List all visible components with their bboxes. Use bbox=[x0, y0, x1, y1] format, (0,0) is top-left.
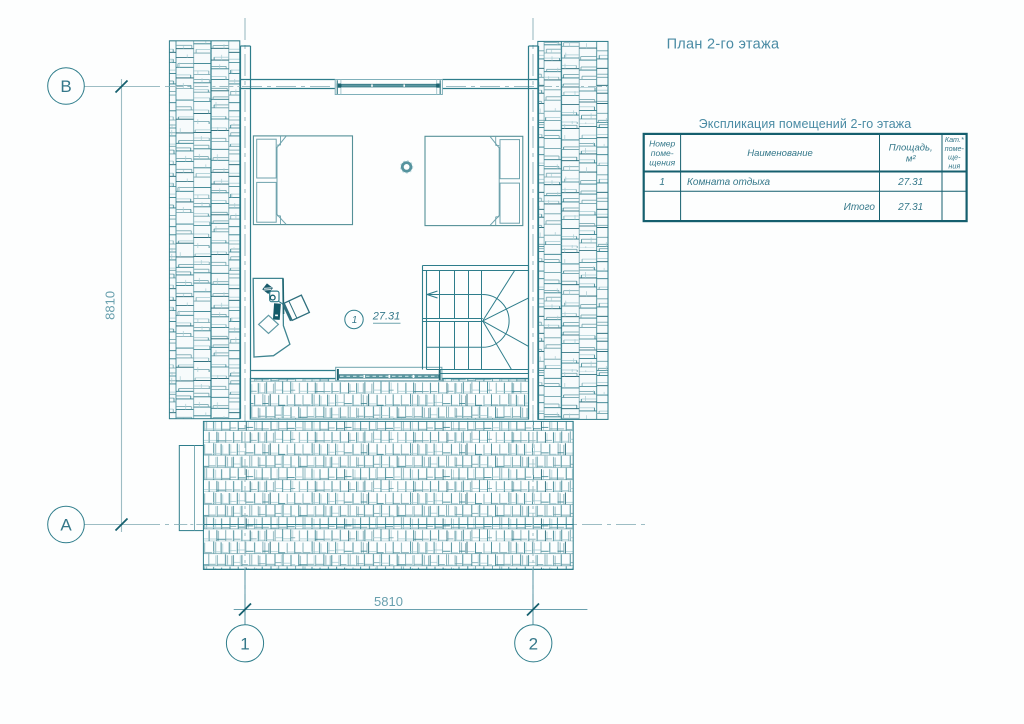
svg-text:Наименование: Наименование bbox=[747, 148, 813, 159]
svg-text:В: В bbox=[60, 77, 71, 96]
svg-text:27.31: 27.31 bbox=[897, 177, 923, 188]
svg-text:5810: 5810 bbox=[374, 594, 403, 609]
svg-text:ще-: ще- bbox=[948, 153, 961, 162]
svg-text:Итого: Итого bbox=[844, 202, 876, 213]
svg-text:Площадь,: Площадь, bbox=[889, 143, 933, 154]
svg-text:1: 1 bbox=[240, 634, 249, 653]
svg-text:27.31: 27.31 bbox=[372, 311, 401, 323]
svg-text:щения: щения bbox=[649, 158, 675, 168]
svg-text:1: 1 bbox=[659, 177, 665, 188]
svg-text:поме-: поме- bbox=[945, 144, 965, 153]
svg-text:1: 1 bbox=[352, 315, 358, 326]
svg-text:поме-: поме- bbox=[651, 148, 674, 158]
svg-text:2: 2 bbox=[529, 634, 538, 653]
svg-text:ния: ния bbox=[948, 161, 960, 170]
svg-text:8810: 8810 bbox=[103, 291, 118, 320]
svg-text:м²: м² bbox=[906, 154, 917, 165]
svg-text:Экспликация помещений 2-го эта: Экспликация помещений 2-го этажа bbox=[699, 117, 912, 131]
svg-text:Кат.*: Кат.* bbox=[945, 135, 964, 144]
svg-text:27.31: 27.31 bbox=[897, 202, 923, 213]
svg-text:План 2-го этажа: План 2-го этажа bbox=[667, 37, 780, 53]
svg-text:А: А bbox=[60, 516, 72, 535]
svg-text:Номер: Номер bbox=[649, 139, 675, 149]
svg-text:Комната отдыха: Комната отдыха bbox=[687, 177, 770, 188]
